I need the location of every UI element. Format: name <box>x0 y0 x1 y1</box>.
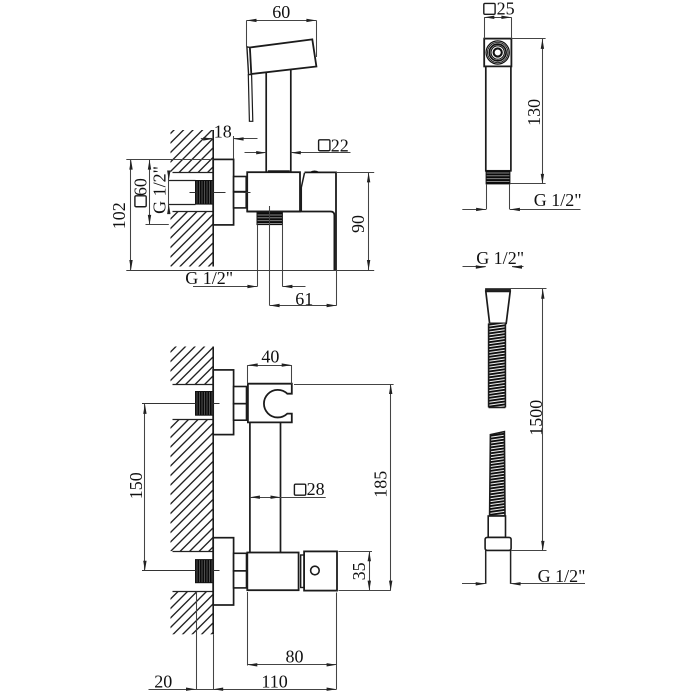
svg-text:G 1/2": G 1/2" <box>538 566 586 586</box>
svg-text:G 1/2": G 1/2" <box>149 166 169 214</box>
svg-text:130: 130 <box>524 99 544 126</box>
svg-text:18: 18 <box>214 122 232 142</box>
svg-text:80: 80 <box>286 647 304 667</box>
svg-text:G 1/2": G 1/2" <box>185 268 233 288</box>
svg-text:110: 110 <box>261 671 287 691</box>
svg-text:22: 22 <box>331 135 349 155</box>
svg-text:60: 60 <box>131 178 151 196</box>
svg-text:61: 61 <box>295 289 313 309</box>
svg-text:G 1/2": G 1/2" <box>476 248 524 268</box>
svg-text:28: 28 <box>307 479 325 499</box>
svg-text:40: 40 <box>261 347 279 367</box>
svg-text:185: 185 <box>371 471 391 498</box>
svg-text:25: 25 <box>497 0 515 19</box>
svg-text:150: 150 <box>126 472 146 499</box>
svg-text:90: 90 <box>348 215 368 233</box>
svg-text:60: 60 <box>272 2 290 22</box>
svg-text:35: 35 <box>349 562 369 580</box>
svg-text:20: 20 <box>154 671 172 691</box>
svg-text:102: 102 <box>109 202 129 229</box>
svg-text:G 1/2": G 1/2" <box>534 190 582 210</box>
svg-text:1500: 1500 <box>526 400 546 436</box>
